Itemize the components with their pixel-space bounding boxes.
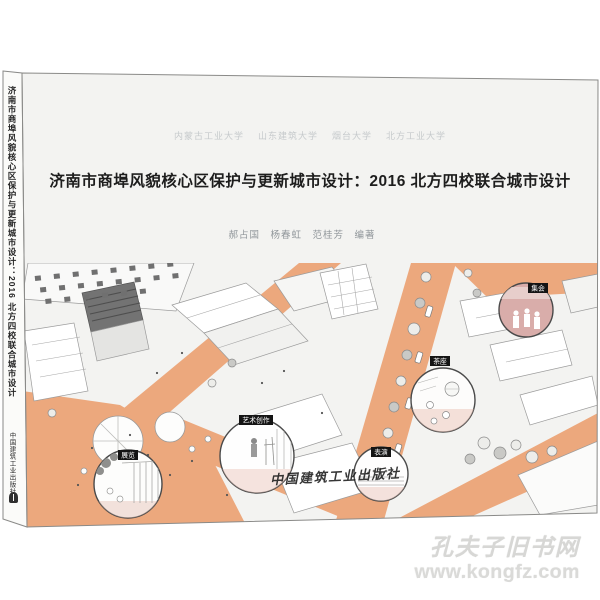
watermark-site-url: www.kongfz.com xyxy=(414,563,580,583)
spine-publisher: 中国建筑工业出版社 xyxy=(7,432,17,488)
cover-illustration: 集会 茶座 xyxy=(22,263,598,527)
university-name: 北方工业大学 xyxy=(386,131,446,141)
university-name: 内蒙古工业大学 xyxy=(174,131,244,141)
callout-label: 艺术创作 xyxy=(242,416,269,425)
university-list: 内蒙古工业大学山东建筑大学烟台大学北方工业大学 xyxy=(22,129,598,142)
front-cover: 内蒙古工业大学山东建筑大学烟台大学北方工业大学 济南市商埠风貌核心区保护与更新城… xyxy=(0,0,600,600)
watermark-site-name: 孔夫子旧书网 xyxy=(414,536,580,559)
university-name: 山东建筑大学 xyxy=(258,131,318,141)
callout-label: 表演 xyxy=(374,448,388,457)
callout-label: 展览 xyxy=(121,451,135,460)
publisher-logo-icon xyxy=(9,492,18,503)
callout-label: 茶座 xyxy=(433,357,447,366)
spine-title: 济南市商埠风貌核心区保护与更新城市设计：2016 北方四校联合城市设计 xyxy=(6,86,18,431)
book-authors: 郝占国 杨春虹 范桂芳 编著 xyxy=(22,227,582,241)
callout-gathering: 集会 xyxy=(499,283,553,337)
site-watermark: 孔夫子旧书网 www.kongfz.com xyxy=(414,536,580,583)
book-title: 济南市商埠风貌核心区保护与更新城市设计：2016 北方四校联合城市设计 xyxy=(22,169,598,191)
callout-label: 集会 xyxy=(531,284,545,293)
university-name: 烟台大学 xyxy=(332,131,372,141)
callout-exhibition: 展览 xyxy=(94,450,162,519)
